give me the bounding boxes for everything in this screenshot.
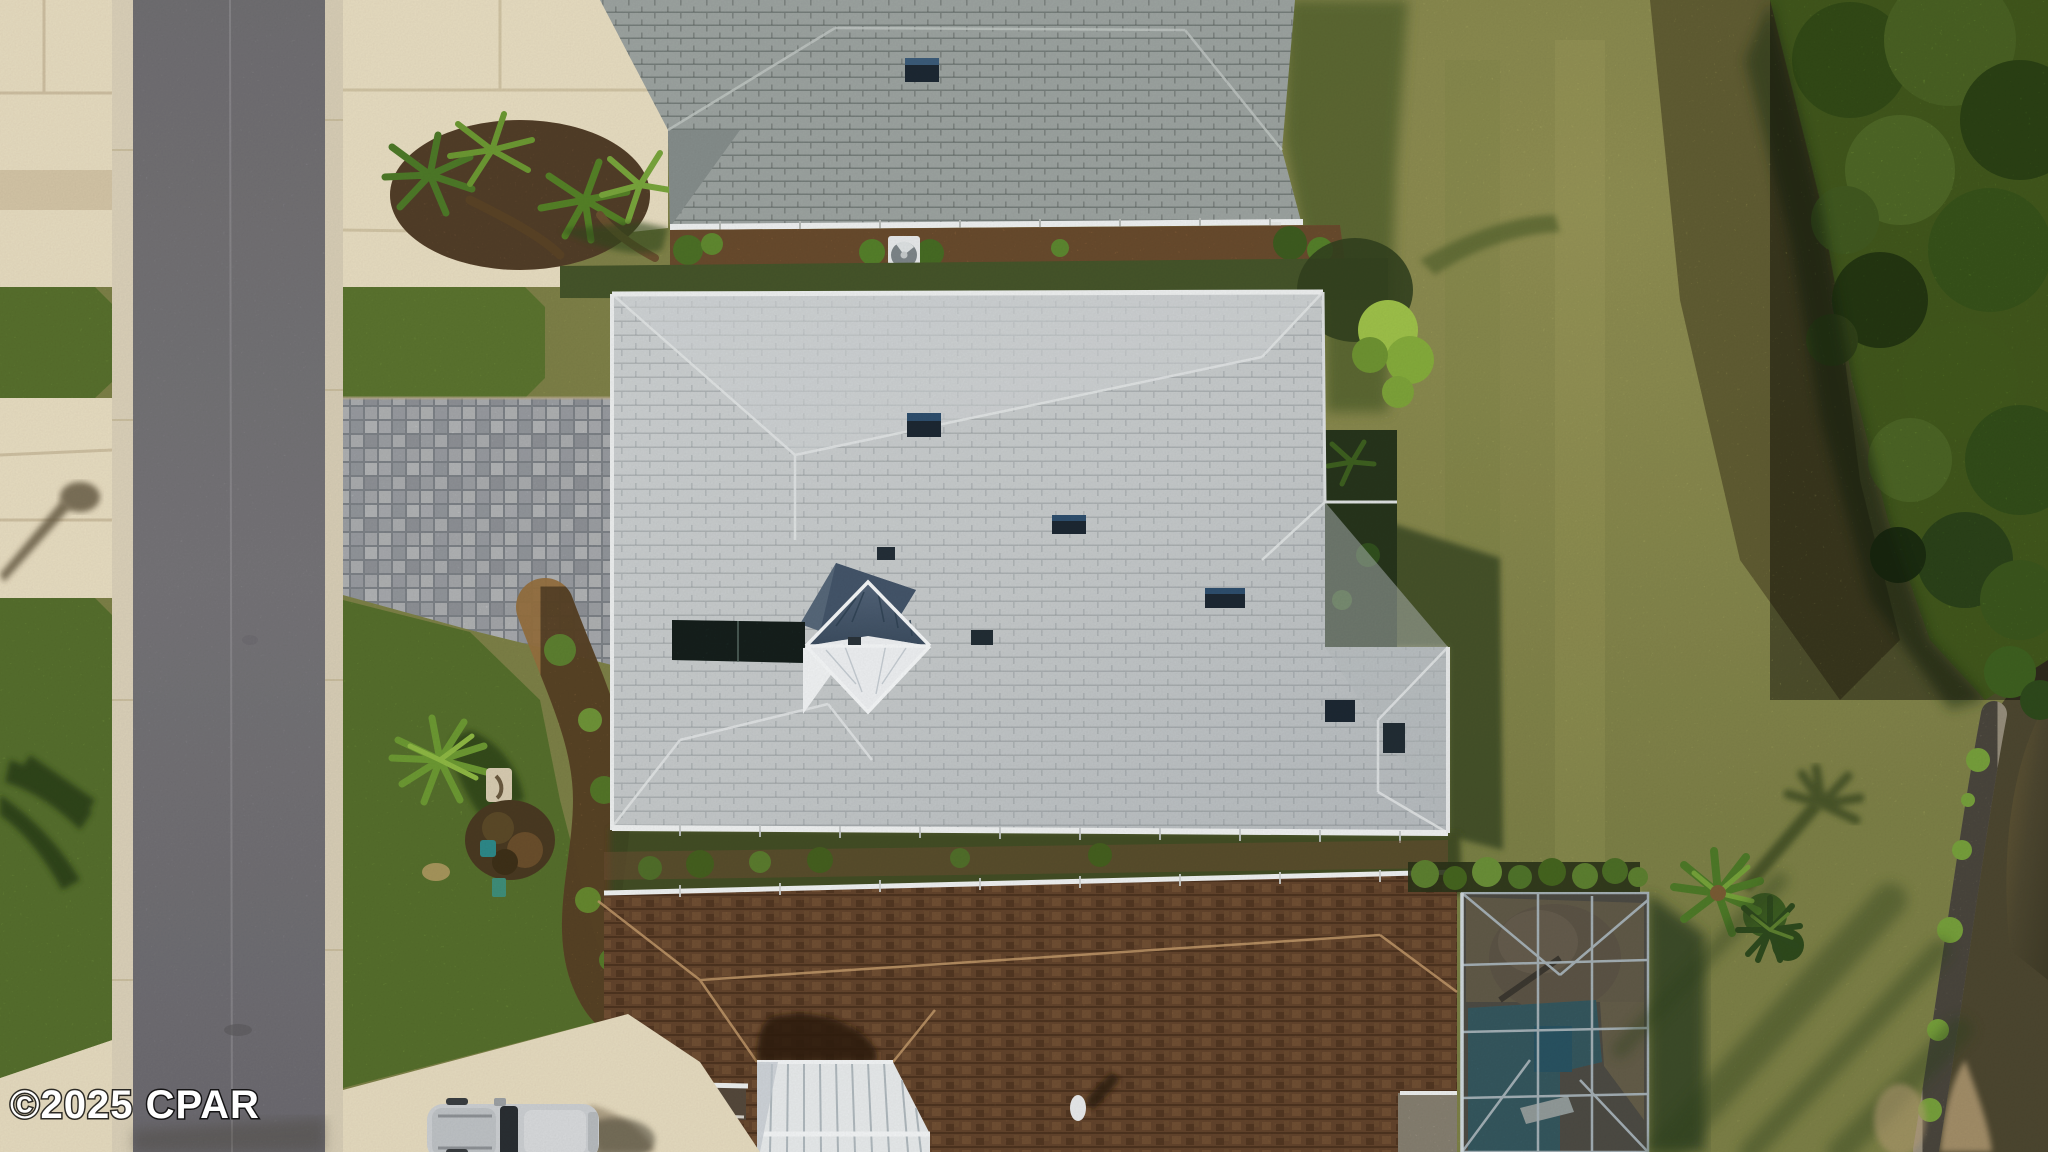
scene-canvas: ©2025 CPAR xyxy=(0,0,2048,1152)
photo-grain xyxy=(0,0,2048,1152)
watermark: ©2025 CPAR xyxy=(10,1083,260,1127)
aerial-photo: ©2025 CPAR xyxy=(0,0,2048,1152)
